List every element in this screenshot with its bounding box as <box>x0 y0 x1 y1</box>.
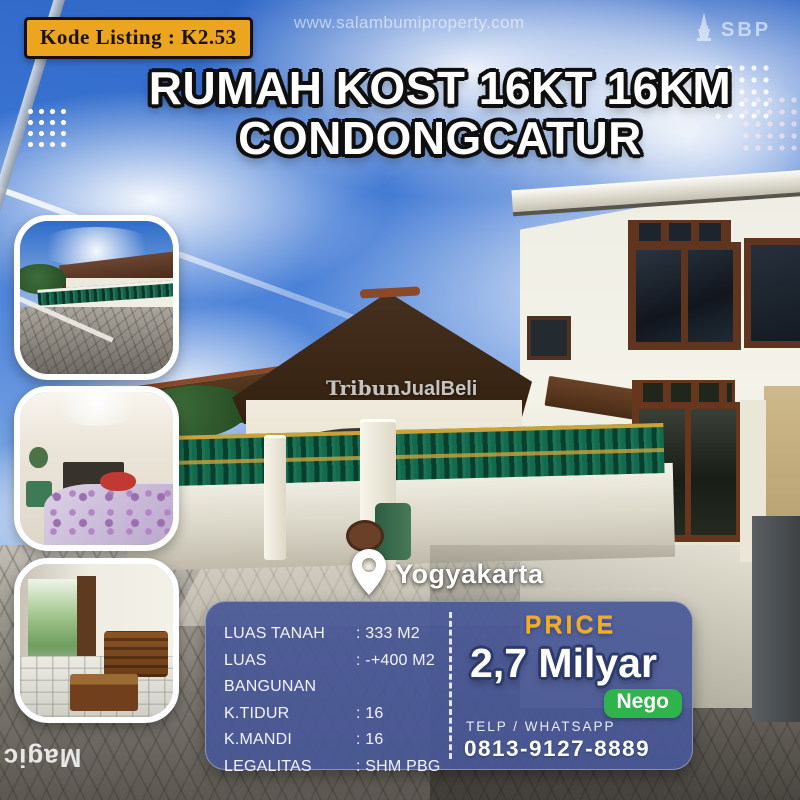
website-watermark: www.salambumiproperty.com <box>294 13 525 33</box>
title-line-1: RUMAH KOST 16KT 16KM <box>118 64 762 114</box>
metal-gate <box>752 516 800 722</box>
thumb-floral-bed <box>44 484 179 551</box>
tribun-watermark-bold: JualBeli <box>401 378 478 400</box>
spec-value: : 333 M2 <box>356 621 449 648</box>
spec-row-luas-bangunan: LUAS BANGUNAN : -+400 M2 <box>224 648 449 701</box>
brand-logo: SBP <box>694 12 771 49</box>
price-section: PRICE 2,7 Milyar Nego TELP / WHATSAPP 08… <box>449 602 692 769</box>
spec-row-luas-tanah: LUAS TANAH : 333 M2 <box>224 621 449 648</box>
details-panel: LUAS TANAH : 333 M2 LUAS BANGUNAN : -+40… <box>205 601 693 770</box>
spec-value: : SHM PBG <box>356 754 449 781</box>
spec-label: K.TIDUR <box>224 701 356 728</box>
spec-row-kamar-tidur: K.TIDUR : 16 <box>224 701 449 728</box>
drum-lid <box>346 520 384 552</box>
spec-row-kamar-mandi: K.MANDI : 16 <box>224 727 449 754</box>
upper-window-right <box>744 238 800 348</box>
listing-code-badge: Kode Listing : K2.53 <box>24 17 253 59</box>
map-pin-icon <box>352 549 386 600</box>
price-heading: PRICE <box>449 611 692 640</box>
side-rotated-watermark: Magic <box>0 742 84 773</box>
thumb-open-door-view <box>28 579 78 668</box>
contact-label: TELP / WHATSAPP <box>466 719 616 734</box>
location-row: Yogyakarta <box>352 549 544 600</box>
attic-vent <box>527 316 571 360</box>
phone-number: 0813-9127-8889 <box>464 736 650 762</box>
spec-value: : 16 <box>356 701 449 728</box>
spec-label: LEGALITAS <box>224 754 356 781</box>
spec-label: LUAS TANAH <box>224 621 356 648</box>
spec-row-legalitas: LEGALITAS : SHM PBG <box>224 754 449 781</box>
thumb-plant <box>29 447 47 468</box>
thumb-red-bag <box>100 472 137 492</box>
tugu-monument-icon <box>694 12 714 49</box>
photo-thumbnail-terrace <box>14 558 179 723</box>
nego-badge: Nego <box>604 689 683 718</box>
spec-label: K.MANDI <box>224 727 356 754</box>
thumb-wooden-bench <box>104 631 168 677</box>
location-name: Yogyakarta <box>395 559 544 590</box>
listing-flyer: Kode Listing : K2.53 www.salambumiproper… <box>0 0 800 800</box>
title-line-2: CONDONGCATUR <box>118 114 762 164</box>
upper-window-transom <box>628 220 731 244</box>
photo-thumbnail-street <box>14 215 179 380</box>
spec-label: LUAS BANGUNAN <box>224 648 356 701</box>
upper-window <box>628 242 741 350</box>
spec-value: : 16 <box>356 727 449 754</box>
dot-grid-left <box>25 106 70 151</box>
gable-ridge-cap <box>360 286 420 298</box>
spec-value: : -+400 M2 <box>356 648 449 701</box>
listing-title: RUMAH KOST 16KT 16KM CONDONGCATUR <box>118 64 762 163</box>
brand-logo-text: SBP <box>721 19 771 42</box>
price-amount: 2,7 Milyar <box>449 640 678 687</box>
tribun-watermark-serif: Tribun <box>326 376 401 400</box>
specs-list: LUAS TANAH : 333 M2 LUAS BANGUNAN : -+40… <box>206 602 449 769</box>
tribun-watermark: TribunJualBeli <box>326 376 477 401</box>
fence-pillar <box>264 438 286 560</box>
thumb-coffee-table <box>70 674 137 711</box>
right-boundary-wall <box>764 386 800 528</box>
thumb-road <box>20 307 173 374</box>
photo-thumbnail-bedroom <box>14 386 179 551</box>
